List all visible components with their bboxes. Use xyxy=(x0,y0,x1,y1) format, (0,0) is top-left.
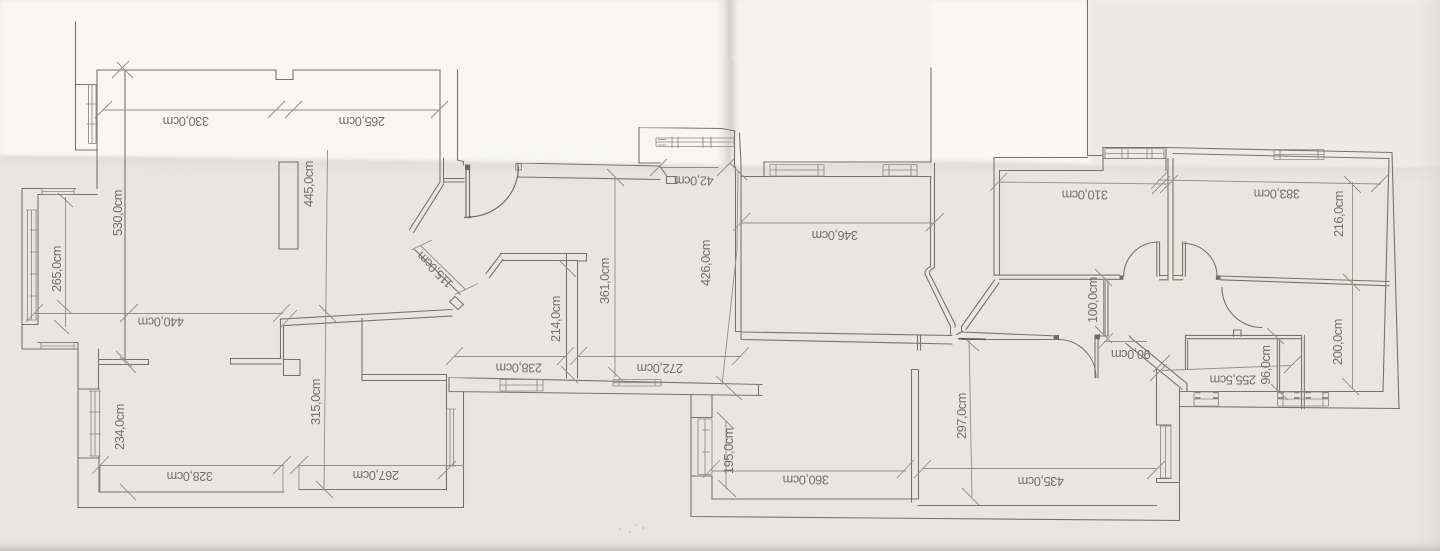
svg-text:530,0cm: 530,0cm xyxy=(110,190,125,236)
svg-text:361,0cm: 361,0cm xyxy=(597,258,612,304)
svg-text:265,0cm: 265,0cm xyxy=(49,246,64,292)
svg-text:346,0cm: 346,0cm xyxy=(812,228,858,243)
svg-text:265,0cm: 265,0cm xyxy=(339,114,385,129)
svg-text:315,0cm: 315,0cm xyxy=(308,379,323,425)
svg-text:330,0cm: 330,0cm xyxy=(163,114,209,129)
svg-text:445,0cm: 445,0cm xyxy=(301,161,316,207)
svg-text:310,0cm: 310,0cm xyxy=(1062,188,1108,203)
svg-text:195,0cm: 195,0cm xyxy=(721,428,736,474)
svg-text:383,0cm: 383,0cm xyxy=(1254,187,1300,202)
svg-text:42,0cm: 42,0cm xyxy=(674,174,713,189)
svg-text:200,0cm: 200,0cm xyxy=(1330,319,1345,365)
svg-text:255,5cm: 255,5cm xyxy=(1210,373,1256,388)
svg-text:234,0cm: 234,0cm xyxy=(112,404,127,450)
svg-text:238,0cm: 238,0cm xyxy=(496,361,542,376)
svg-text:435,0cm: 435,0cm xyxy=(1018,474,1064,489)
svg-text:297,0cm: 297,0cm xyxy=(954,393,969,439)
svg-text:360,0cm: 360,0cm xyxy=(783,473,829,488)
svg-text:426,0cm: 426,0cm xyxy=(698,240,713,286)
svg-text:100,0cm: 100,0cm xyxy=(1085,277,1100,323)
svg-text:90,0cm: 90,0cm xyxy=(1111,347,1150,362)
svg-text:96,0cm: 96,0cm xyxy=(1258,345,1273,384)
svg-text:214,0cm: 214,0cm xyxy=(548,296,563,342)
svg-text:216,0cm: 216,0cm xyxy=(1331,191,1346,237)
svg-text:267,0cm: 267,0cm xyxy=(353,468,399,483)
svg-text:328,0cm: 328,0cm xyxy=(167,469,213,484)
svg-text:440,0cm: 440,0cm xyxy=(138,315,184,330)
svg-text:272,0cm: 272,0cm xyxy=(637,361,683,376)
